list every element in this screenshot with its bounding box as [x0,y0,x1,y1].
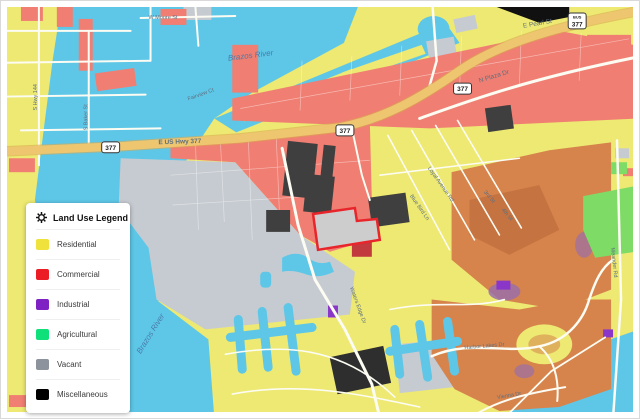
legend-item-commercial: Commercial [36,259,120,289]
svg-text:377: 377 [340,128,351,135]
miscellaneous-label: Miscellaneous [57,390,108,399]
baker-st-label: S Baker St [84,104,90,131]
svg-text:377: 377 [457,86,468,93]
svg-text:377: 377 [572,21,583,28]
hwy-377-label: E US Hwy 377 [158,138,201,146]
vacant-label: Vacant [57,360,81,369]
svg-text:377: 377 [105,145,116,152]
legend-item-vacant: Vacant [36,349,120,379]
loyal-avenue-label: Loyal Avenue Rd [426,166,455,203]
agricultural-label: Agricultural [57,330,97,339]
legend-item-agricultural: Agricultural [36,319,120,349]
route-shield-377-b: 377 [336,125,354,136]
legend-item-industrial: Industrial [36,289,120,319]
commercial-label: Commercial [57,270,100,279]
svg-text:BUS: BUS [573,14,582,19]
moore-st-label: W Moore St [149,15,178,21]
residential-label: Residential [57,240,97,249]
route-shield-377-c: 377 [454,83,472,94]
map-window: 377 377 377 BUS 377 Brazos River Brazos … [0,0,640,419]
route-shield-377-a: 377 [102,142,120,153]
legend-item-residential: Residential [36,229,120,259]
industrial-label: Industrial [57,300,89,309]
legend-title: Land Use Legend [53,213,128,223]
pond-small [260,272,271,288]
miscellaneous-swatch [36,389,49,400]
route-shield-bus-377: BUS 377 [568,13,586,29]
gear-icon[interactable] [36,212,47,223]
commercial-swatch [36,269,49,280]
hwy-144-label: S Hwy 144 [33,84,39,110]
legend-item-miscellaneous: Miscellaneous [36,379,120,409]
agricultural-swatch [36,329,49,340]
land-use-legend-panel: Land Use Legend Residential Commercial I… [26,203,130,413]
residential-swatch [36,239,49,250]
industrial-swatch [36,299,49,310]
legend-header: Land Use Legend [36,212,120,229]
vacant-swatch [36,359,49,370]
